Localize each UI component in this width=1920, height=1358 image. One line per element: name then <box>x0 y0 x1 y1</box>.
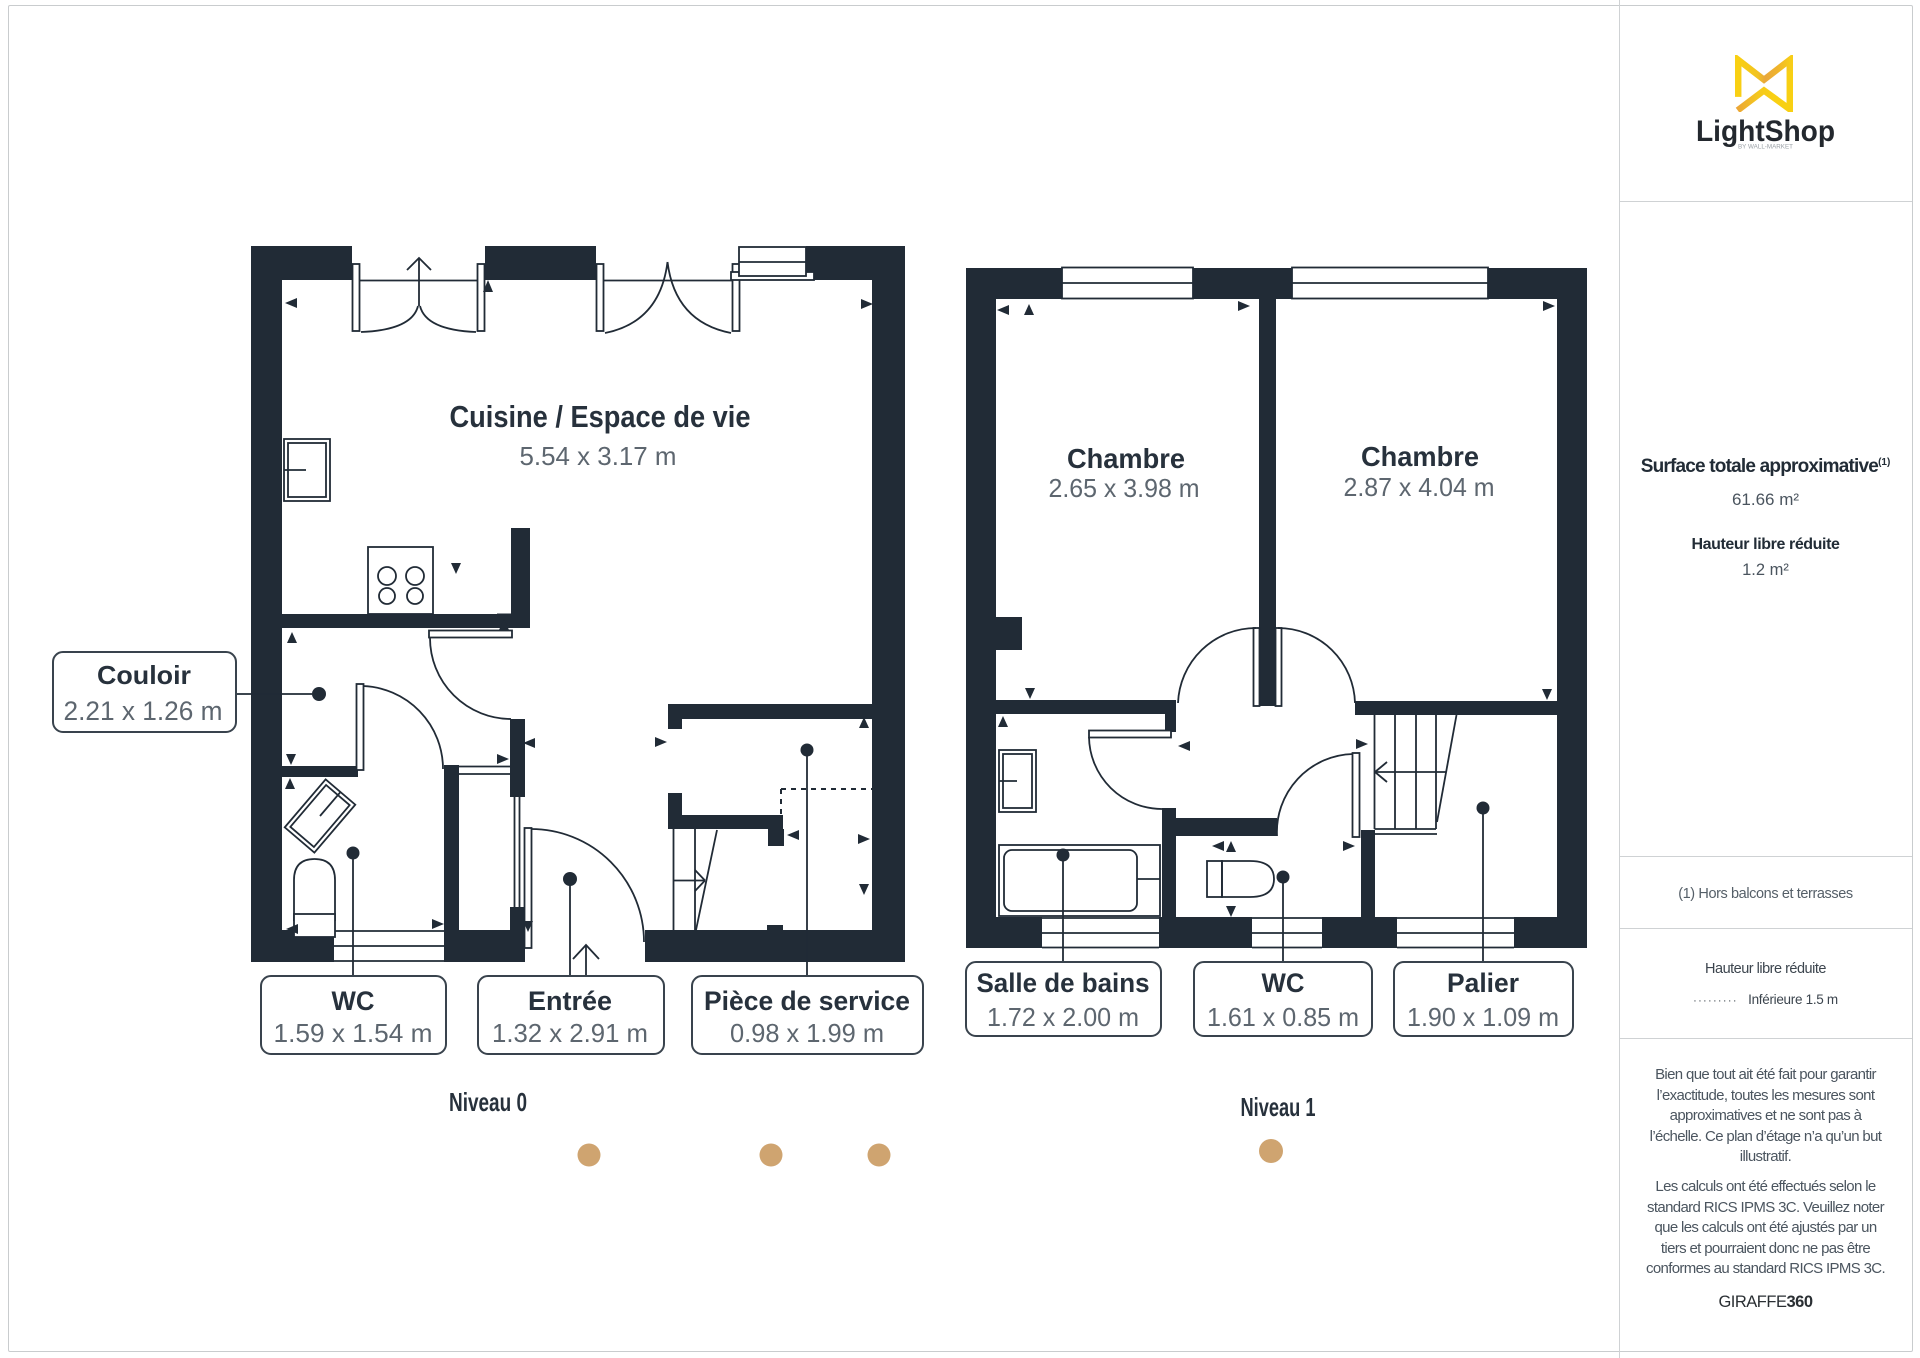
svg-text:Niveau 0: Niveau 0 <box>449 1087 527 1117</box>
svg-text:Niveau 1: Niveau 1 <box>1241 1092 1316 1122</box>
svg-text:2.21 x 1.26 m: 2.21 x 1.26 m <box>64 696 223 726</box>
svg-text:Cuisine / Espace de vie: Cuisine / Espace de vie <box>450 399 751 434</box>
svg-text:Couloir: Couloir <box>97 660 191 690</box>
svg-text:2.65 x 3.98 m: 2.65 x 3.98 m <box>1049 473 1200 503</box>
svg-text:2.87 x 4.04 m: 2.87 x 4.04 m <box>1344 472 1495 502</box>
svg-text:0.98 x 1.99 m: 0.98 x 1.99 m <box>730 1018 884 1048</box>
svg-text:1.61 x 0.85 m: 1.61 x 0.85 m <box>1207 1002 1359 1032</box>
svg-text:Salle de bains: Salle de bains <box>977 968 1150 998</box>
svg-text:Entrée: Entrée <box>528 986 612 1016</box>
svg-text:1.72 x 2.00 m: 1.72 x 2.00 m <box>987 1002 1139 1032</box>
svg-text:Chambre: Chambre <box>1361 441 1479 472</box>
svg-text:WC: WC <box>1262 968 1305 998</box>
svg-text:WC: WC <box>332 986 375 1016</box>
svg-text:Pièce de service: Pièce de service <box>704 986 910 1016</box>
svg-text:Chambre: Chambre <box>1067 443 1185 474</box>
svg-text:1.59 x 1.54 m: 1.59 x 1.54 m <box>274 1018 433 1048</box>
svg-text:Palier: Palier <box>1447 968 1519 998</box>
svg-text:BY WALL-MARKET: BY WALL-MARKET <box>1738 144 1793 151</box>
svg-text:1.32 x 2.91 m: 1.32 x 2.91 m <box>492 1018 648 1048</box>
svg-text:1.90 x 1.09 m: 1.90 x 1.09 m <box>1407 1002 1559 1032</box>
svg-text:5.54 x 3.17 m: 5.54 x 3.17 m <box>520 441 677 471</box>
